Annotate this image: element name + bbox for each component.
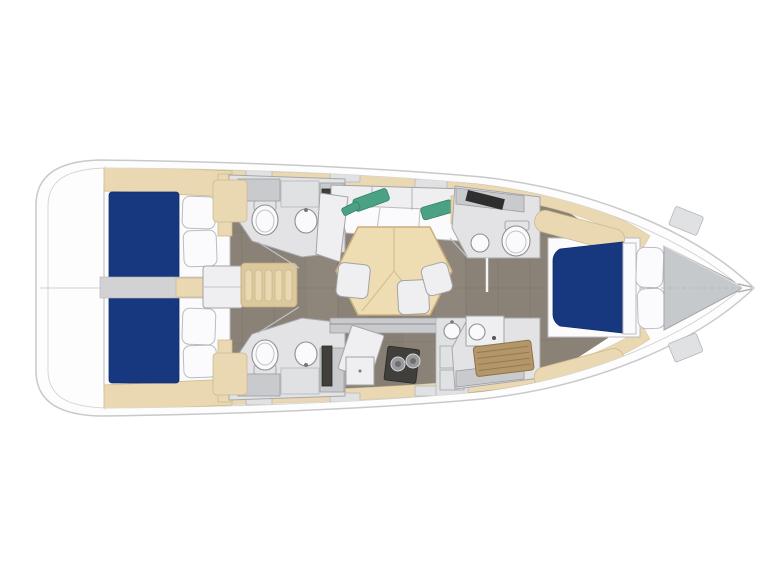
salon-table-group xyxy=(335,227,453,315)
double-berth-mattress-blue xyxy=(109,192,179,280)
pillow xyxy=(637,288,665,329)
step xyxy=(245,270,252,301)
companionway-steps xyxy=(241,263,297,307)
stove-burner-center xyxy=(395,361,401,367)
double-berth-mattress-blue xyxy=(553,242,623,333)
entry-seat xyxy=(213,180,247,222)
mattress-edge xyxy=(623,243,636,334)
sink xyxy=(471,234,489,252)
pillow xyxy=(183,230,217,267)
step xyxy=(265,270,272,301)
cabinet-knob xyxy=(359,370,362,373)
pillow xyxy=(182,308,216,345)
foredeck-hatch-port xyxy=(669,206,704,236)
faucet xyxy=(304,363,308,367)
step xyxy=(275,270,282,301)
yacht-floorplan-page xyxy=(0,0,768,576)
forward-head xyxy=(450,186,540,258)
step xyxy=(285,270,292,301)
sink xyxy=(295,209,317,233)
galley-counter xyxy=(330,318,440,333)
sink xyxy=(469,324,485,340)
pillow xyxy=(636,247,664,288)
entry-seat xyxy=(213,353,247,395)
galley-faucet xyxy=(450,320,454,324)
interior xyxy=(100,165,752,411)
stove-burner-center xyxy=(410,358,416,364)
corridor-step xyxy=(176,278,206,297)
engine-box xyxy=(203,266,243,308)
pillow xyxy=(182,196,216,229)
aft-cabin-starboard xyxy=(104,292,232,411)
faucet xyxy=(304,208,308,212)
double-berth-mattress-blue xyxy=(109,295,179,383)
pillow xyxy=(183,345,217,378)
door-handle xyxy=(492,336,496,340)
sink xyxy=(295,342,317,366)
forward-shower xyxy=(452,316,540,389)
step xyxy=(255,270,262,301)
stool xyxy=(335,262,370,299)
yacht-floorplan xyxy=(0,0,768,576)
counter xyxy=(281,181,319,207)
locker-door-dark xyxy=(322,346,332,386)
counter xyxy=(281,368,319,394)
